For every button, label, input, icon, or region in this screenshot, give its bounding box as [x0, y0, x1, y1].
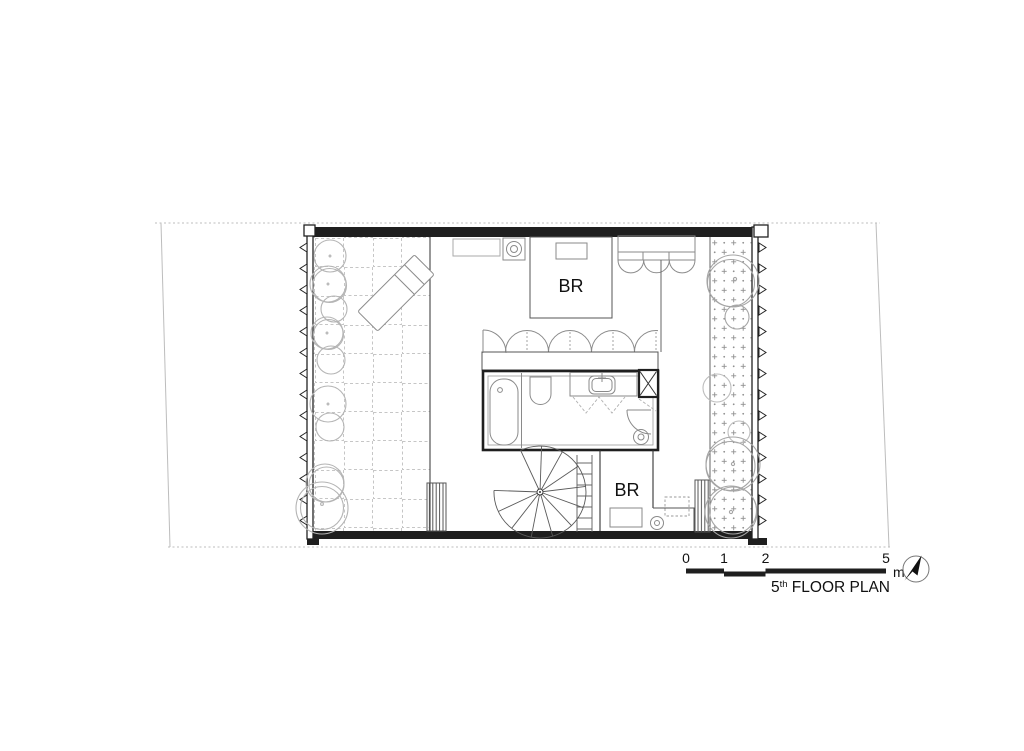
shaft-x-box — [639, 370, 658, 397]
floor-plan-title: 5th FLOOR PLAN — [771, 579, 890, 596]
straight-stair-run — [577, 455, 592, 532]
equipment-box — [665, 497, 689, 516]
bench-terrace — [427, 483, 446, 531]
scale-tick-1: 1 — [720, 550, 728, 566]
floor-plan-title-number: 5 — [771, 579, 780, 596]
site-boundary-west — [161, 223, 170, 547]
shelf — [453, 239, 500, 256]
site-boundary-east — [876, 223, 889, 547]
wardrobe — [618, 236, 695, 273]
door-swing — [483, 330, 506, 353]
washing-machine — [503, 238, 525, 260]
north-arrow-icon — [903, 556, 929, 583]
scale-tick-0: 0 — [682, 550, 690, 566]
chair — [651, 517, 664, 530]
scale-bar-segment-2-5 — [766, 569, 887, 574]
wall-north-east-post — [754, 225, 768, 237]
floor-plan-title-rest: FLOOR PLAN — [788, 579, 891, 596]
corner-counter — [653, 508, 694, 531]
desk — [610, 508, 642, 527]
scale-tick-5: 5 — [882, 550, 890, 566]
floor-plan-drawing: BR — [0, 0, 1024, 751]
wall-north-west-post — [304, 225, 315, 236]
floor-plan-title-ordinal: th — [780, 579, 788, 590]
scale-bar-segment-0-1 — [686, 569, 724, 574]
label-bedroom-upper: BR — [558, 276, 583, 296]
scale-bar-segment-1-2 — [724, 572, 766, 577]
label-bedroom-lower: BR — [614, 480, 639, 500]
scale-bar: 0 1 2 5 m — [682, 550, 905, 580]
curtain-partition — [482, 330, 678, 370]
spiral-staircase — [494, 446, 586, 538]
bathroom — [483, 370, 658, 450]
scale-tick-2: 2 — [762, 550, 770, 566]
